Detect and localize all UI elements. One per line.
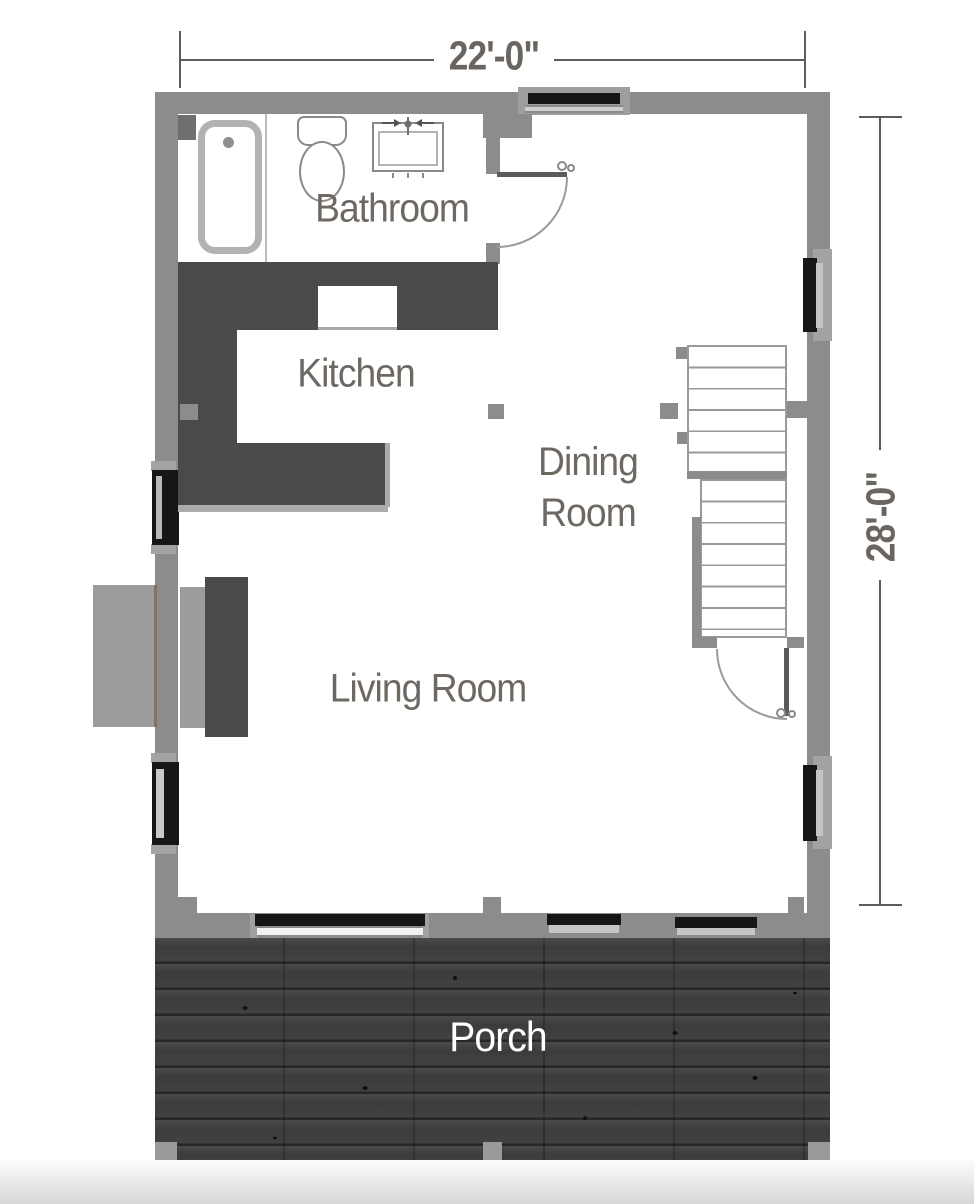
depth-dim-line-top xyxy=(879,117,881,450)
bathroom-wall-lower xyxy=(486,243,500,264)
window-bottom-right-icon xyxy=(675,917,757,928)
bathroom-label: Bathroom xyxy=(315,187,469,232)
depth-dim-line-bottom xyxy=(879,580,881,905)
sliding-door-track xyxy=(257,926,423,937)
window-left-lower-cap-bottom xyxy=(151,844,176,854)
sink-icon xyxy=(371,115,445,179)
sliding-glass-door-icon xyxy=(255,914,425,926)
bathroom-wall-upper xyxy=(486,138,500,174)
fireplace-hearth xyxy=(180,587,205,728)
bottom-stub-right xyxy=(788,897,804,914)
bathtub-drain-icon xyxy=(223,137,234,148)
stair-stub-upper xyxy=(676,347,687,359)
exterior-wall-top xyxy=(155,92,830,114)
window-right-upper-inner xyxy=(816,263,823,328)
window-bottom-middle-icon xyxy=(547,914,621,925)
bathtub-alcove-divider xyxy=(265,114,267,262)
window-bottom-middle-sill xyxy=(549,925,619,935)
bathroom-door-knob2-icon xyxy=(567,164,575,172)
fireplace-wall-seam xyxy=(154,585,157,727)
column-post-right xyxy=(660,403,678,419)
window-right-upper-icon xyxy=(803,258,817,332)
bottom-stub-left xyxy=(178,897,197,914)
bottom-stub-center xyxy=(483,897,501,914)
window-top-icon xyxy=(528,93,620,104)
window-left-lower-inner xyxy=(156,769,164,838)
kitchen-counter-edge-right xyxy=(385,443,390,507)
window-right-lower-inner xyxy=(816,770,823,836)
dining-room-label: Dining Room xyxy=(518,437,658,539)
range-cutout-icon xyxy=(318,286,397,330)
porch-label: Porch xyxy=(449,1013,546,1061)
window-right-lower-icon xyxy=(803,765,817,841)
kitchen-counter-edge-bottom xyxy=(178,505,388,512)
window-top-sill xyxy=(525,105,623,113)
stair-door-knob-icon xyxy=(776,708,786,718)
kitchen-label: Kitchen xyxy=(297,352,415,397)
depth-dimension-label: 28'-0" xyxy=(858,472,905,563)
stair-door-panel-icon xyxy=(784,648,789,716)
stair-right-connector xyxy=(787,401,807,418)
porch-post-left xyxy=(155,1142,177,1160)
width-dim-line-left xyxy=(180,59,434,61)
bathroom-corner-square xyxy=(178,115,196,140)
stair-stub-mid xyxy=(677,432,687,444)
fireplace-chimney-bump xyxy=(93,585,155,727)
page-bottom-gradient xyxy=(0,1160,974,1204)
window-bottom-right-sill xyxy=(677,928,755,937)
bathroom-wall-corner-block xyxy=(483,114,532,138)
width-dimension-label: 22'-0" xyxy=(449,33,540,80)
stair-landing-divider xyxy=(687,471,787,479)
fireplace-icon xyxy=(205,577,248,737)
porch-post-center xyxy=(483,1142,502,1160)
bathroom-door-knob-icon xyxy=(557,161,567,171)
column-post-left xyxy=(180,404,198,420)
bathroom-door-panel-icon xyxy=(497,172,567,177)
staircase-lower-flight xyxy=(700,479,787,638)
kitchen-counter-bottom xyxy=(237,443,385,505)
stair-enclosure-wall-bottom-right xyxy=(787,637,804,648)
staircase-upper-flight xyxy=(687,345,787,474)
living-room-label: Living Room xyxy=(330,667,527,712)
column-post-center xyxy=(488,404,504,419)
width-dim-line-right xyxy=(554,59,805,61)
window-left-upper-inner xyxy=(156,476,162,539)
window-left-upper-cap-bottom xyxy=(151,544,176,554)
porch-post-right xyxy=(808,1142,830,1160)
stair-door-knob2-icon xyxy=(788,710,796,718)
stair-enclosure-wall-left xyxy=(692,517,701,648)
floor-plan-canvas: Bathroom Kitchen Dining Room Living Room… xyxy=(0,0,974,1204)
stair-enclosure-wall-bottom-left xyxy=(692,637,717,648)
